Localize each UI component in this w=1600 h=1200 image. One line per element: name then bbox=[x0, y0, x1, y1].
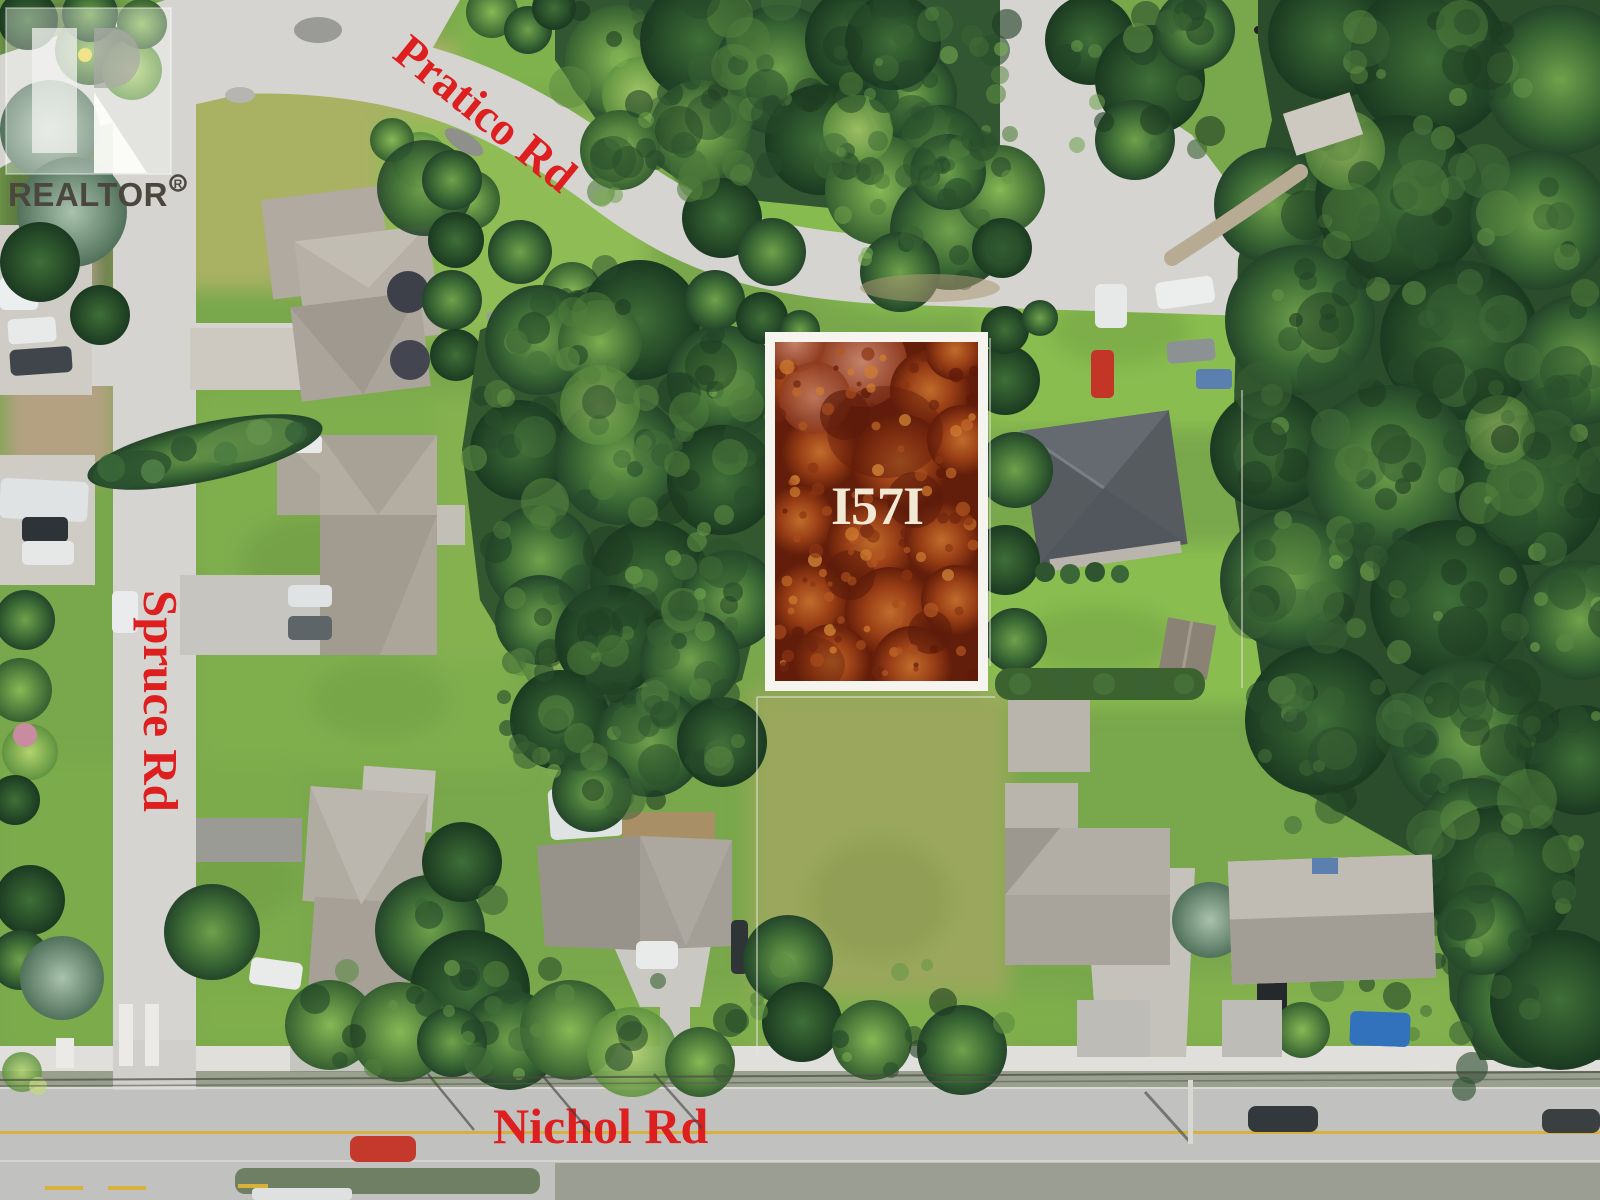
svg-text:Nichol Rd: Nichol Rd bbox=[493, 1098, 709, 1154]
svg-text:R: R bbox=[174, 177, 183, 191]
svg-text:REALTOR: REALTOR bbox=[8, 176, 168, 213]
svg-text:Spruce Rd: Spruce Rd bbox=[133, 590, 188, 812]
svg-text:I57I: I57I bbox=[831, 476, 923, 536]
